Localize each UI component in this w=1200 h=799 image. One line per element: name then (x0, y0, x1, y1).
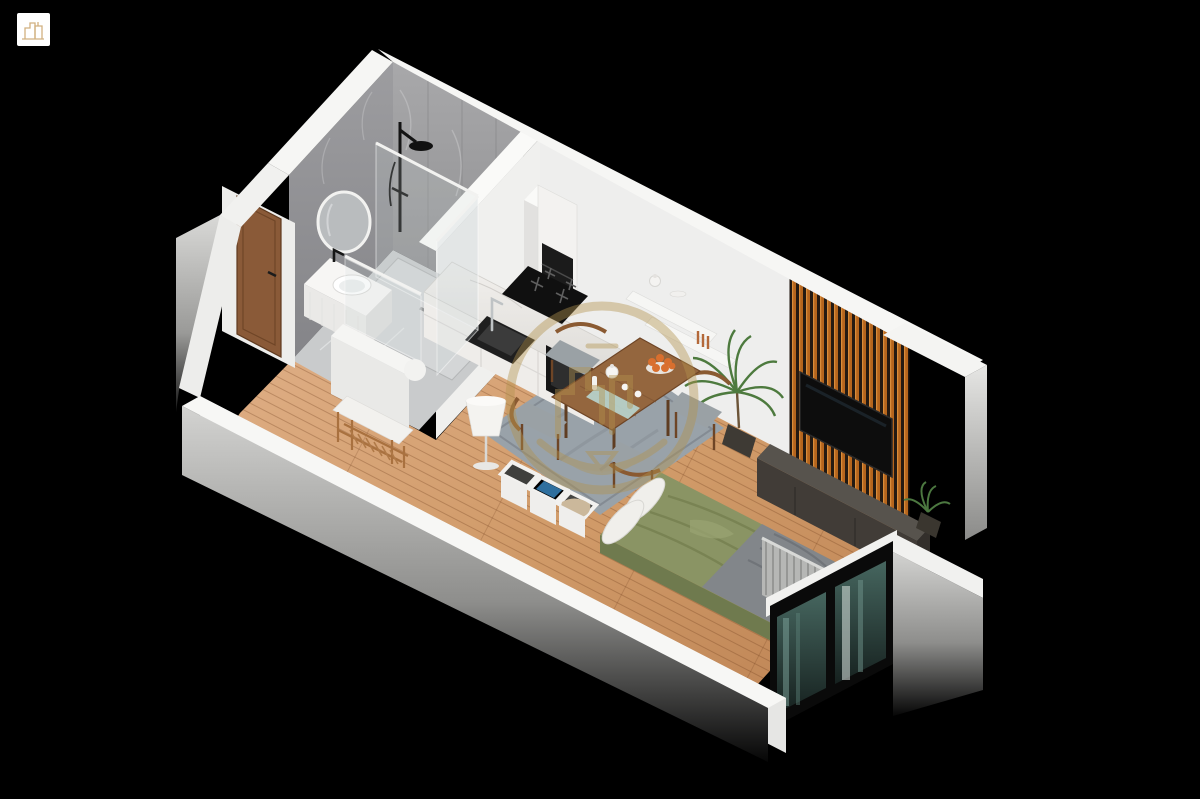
screenshot-stage (0, 0, 1200, 799)
deco-plate (670, 291, 686, 297)
right-wall-outer-face (965, 365, 987, 540)
pony-wall-round-end (404, 359, 426, 381)
corner-logo (17, 13, 50, 46)
cup-2 (635, 391, 642, 398)
round-mirror (318, 192, 370, 252)
floorplan-render (0, 0, 1200, 799)
logo-tile (17, 13, 50, 46)
